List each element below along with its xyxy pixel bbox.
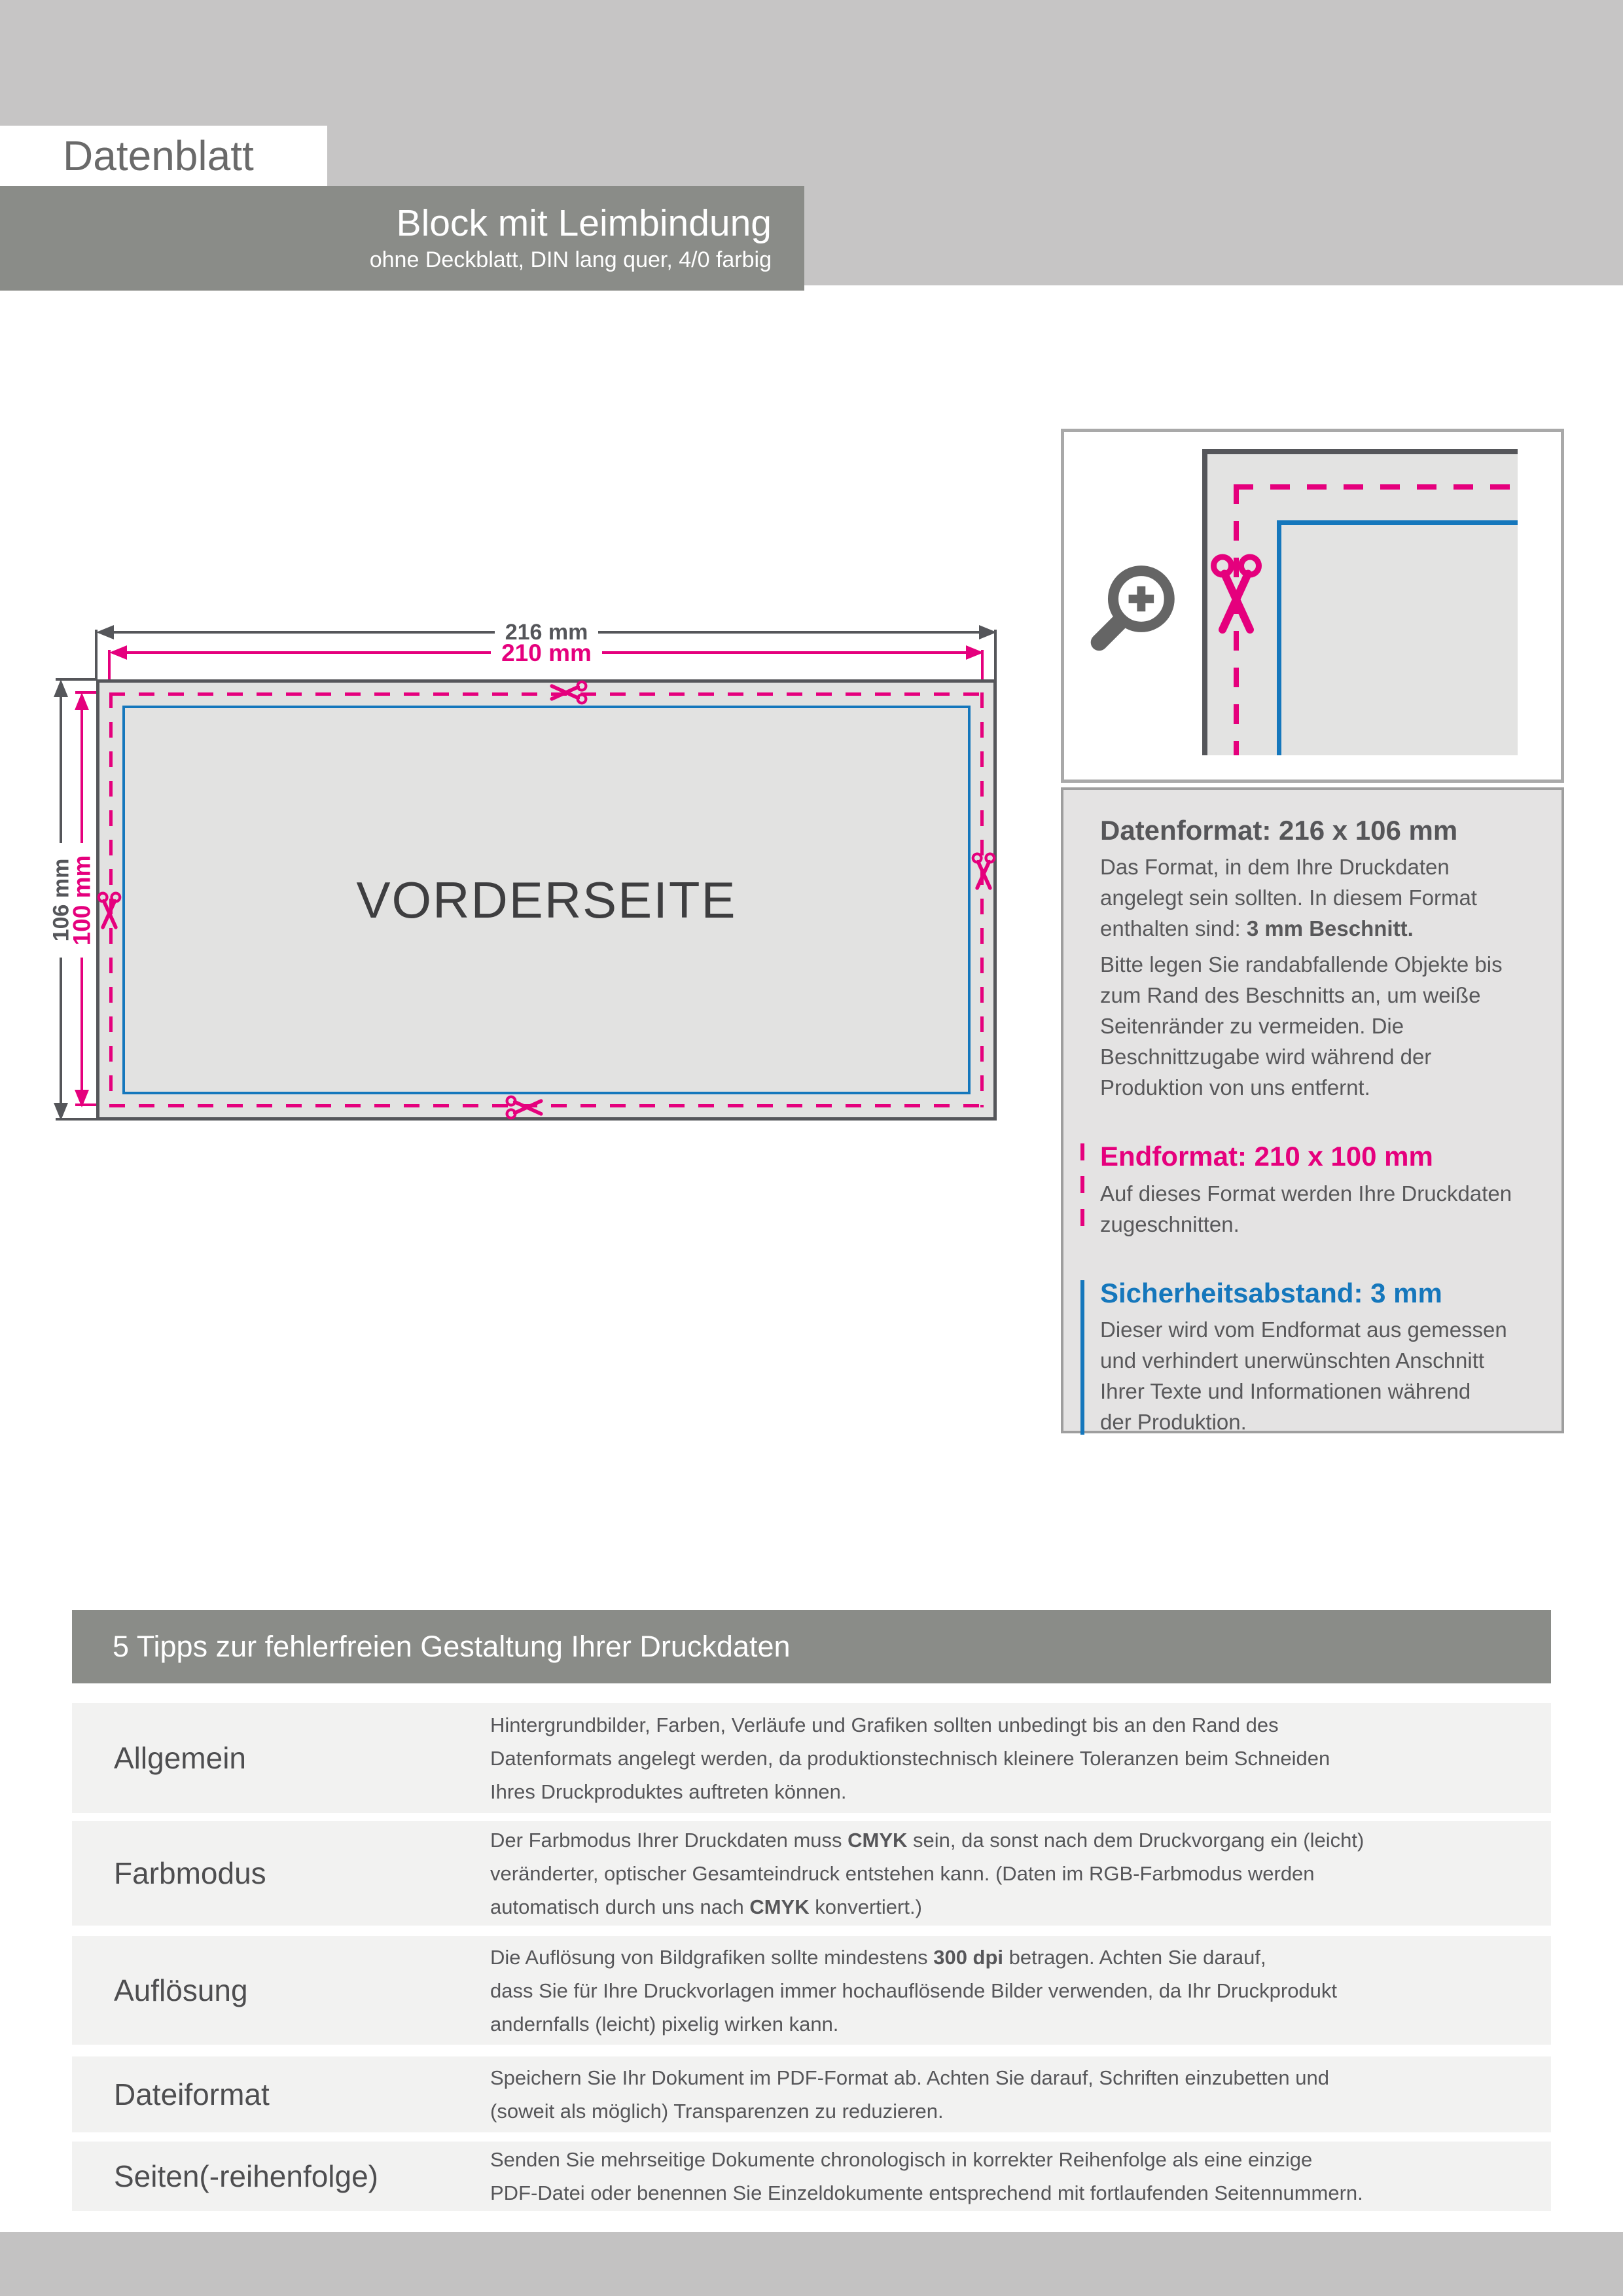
endformat-dashed-bar: [1080, 1143, 1084, 1236]
detail-safety-line-v: [1277, 520, 1281, 755]
tips-row-label: Allgemein: [72, 1740, 490, 1776]
footer-gray-band: [0, 2232, 1623, 2296]
title-band: Block mit Leimbindung ohne Deckblatt, DI…: [0, 186, 804, 291]
datenformat-heading: Datenformat: 216 x 106 mm: [1100, 815, 1543, 846]
front-side-label: VORDERSEITE: [356, 870, 736, 930]
tips-row-text: Die Auflösung von Bildgrafiken sollte mi…: [490, 1941, 1551, 2041]
safety-solid-bar: [1080, 1280, 1084, 1435]
dim-line: [80, 710, 83, 843]
endformat-heading: Endformat: 210 x 100 mm: [1100, 1141, 1543, 1172]
dim-line: [60, 697, 62, 843]
safety-heading: Sicherheitsabstand: 3 mm: [1100, 1278, 1543, 1309]
datenblatt-label-box: Datenblatt: [0, 126, 327, 186]
tips-heading: 5 Tipps zur fehlerfreien Gestaltung Ihre…: [113, 1630, 791, 1664]
tips-row-allgemein: Allgemein Hintergrundbilder, Farben, Ver…: [72, 1703, 1551, 1813]
dim-line: [598, 631, 979, 634]
dim-line: [114, 631, 495, 634]
safety-margin-box: VORDERSEITE: [122, 706, 971, 1094]
arrow-up-icon: [75, 692, 89, 710]
tips-row-text: Hintergrundbilder, Farben, Verläufe und …: [490, 1708, 1551, 1808]
extension-line: [95, 630, 98, 679]
dim-label-slot: 100 mm: [67, 843, 96, 958]
tips-row-label: Auflösung: [72, 1973, 490, 2008]
page-title: Block mit Leimbindung: [397, 204, 772, 243]
dim-line: [60, 958, 62, 1103]
dim-label-210: 210 mm: [501, 641, 592, 665]
endformat-body: Auf dieses Format werden Ihre Druckdaten…: [1100, 1178, 1543, 1240]
datenformat-body2: Bitte legen Sie randabfallende Objekte b…: [1100, 949, 1543, 1103]
datenformat-body: Das Format, in dem Ihre Druckdaten angel…: [1100, 852, 1543, 944]
arrow-up-icon: [54, 679, 68, 697]
tips-row-aufloesung: Auflösung Die Auflösung von Bildgrafiken…: [72, 1936, 1551, 2045]
arrow-left-icon: [109, 645, 127, 660]
format-legend: Datenformat: 216 x 106 mm Das Format, in…: [1061, 787, 1564, 1433]
tips-row-seitenreihenfolge: Seiten(-reihenfolge) Senden Sie mehrseit…: [72, 2142, 1551, 2211]
dim-line: [80, 958, 83, 1090]
scissors-icon: [1206, 549, 1266, 636]
tips-row-dateiformat: Dateiformat Speichern Sie Ihr Dokument i…: [72, 2056, 1551, 2132]
extension-line: [994, 630, 997, 679]
extension-line: [56, 1118, 96, 1121]
scissors-icon: [503, 1092, 544, 1122]
tips-row-text: Der Farbmodus Ihrer Druckdaten muss CMYK…: [490, 1823, 1551, 1924]
detail-trim-line-h: [1234, 484, 1518, 490]
zoom-detail-panel: [1061, 429, 1564, 783]
arrow-left-icon: [96, 625, 114, 639]
datenblatt-label: Datenblatt: [63, 135, 254, 177]
extension-line: [56, 678, 96, 681]
dim-line: [127, 651, 491, 654]
endformat-section: Endformat: 210 x 100 mm Auf dieses Forma…: [1100, 1141, 1543, 1239]
page-subtitle: ohne Deckblatt, DIN lang quer, 4/0 farbi…: [370, 249, 772, 272]
dim-line: [602, 651, 966, 654]
tips-row-label: Seiten(-reihenfolge): [72, 2159, 490, 2194]
dim-label-100: 100 mm: [70, 855, 94, 945]
tips-row-label: Farbmodus: [72, 1856, 490, 1891]
scissors-icon: [969, 850, 999, 891]
tips-row-text: Speichern Sie Ihr Dokument im PDF-Format…: [490, 2061, 1551, 2128]
magnifier-zoom-icon: [1084, 560, 1182, 658]
tips-row-farbmodus: Farbmodus Der Farbmodus Ihrer Druckdaten…: [72, 1821, 1551, 1926]
scissors-icon: [94, 889, 124, 930]
tips-row-label: Dateiformat: [72, 2077, 490, 2112]
detail-safety-line-h: [1277, 520, 1518, 525]
detail-datenformat-edge-h: [1202, 449, 1518, 454]
dim-endformat-height: 100 mm: [67, 692, 96, 1107]
dim-endformat-width: 210 mm: [109, 639, 984, 666]
tips-header-band: 5 Tipps zur fehlerfreien Gestaltung Ihre…: [72, 1610, 1551, 1683]
safety-body: Dieser wird vom Endformat aus gemessen u…: [1100, 1314, 1543, 1437]
tips-row-text: Senden Sie mehrseitige Dokumente chronol…: [490, 2143, 1551, 2210]
scissors-icon: [549, 677, 590, 708]
safety-section: Sicherheitsabstand: 3 mm Dieser wird vom…: [1100, 1278, 1543, 1437]
